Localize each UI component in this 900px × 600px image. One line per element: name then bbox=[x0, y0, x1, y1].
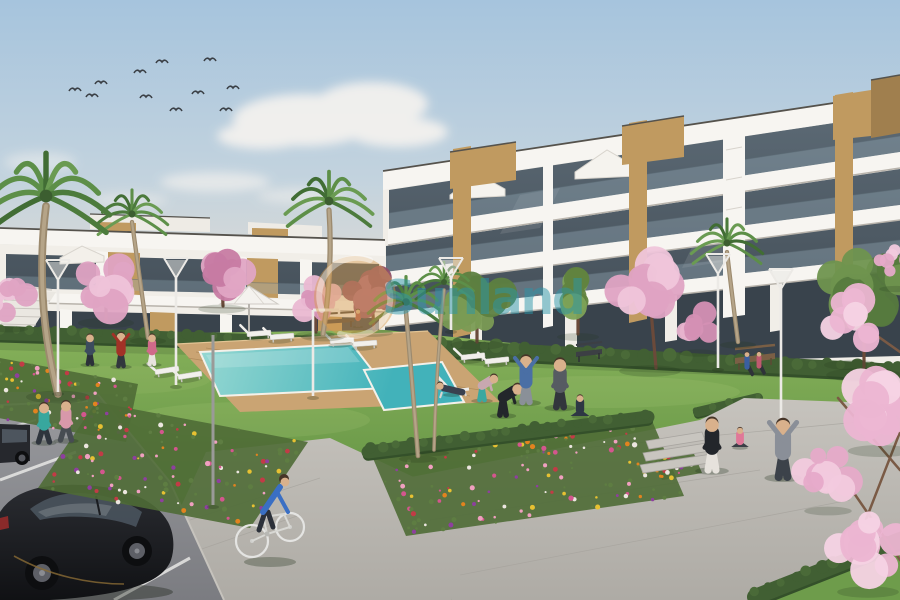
parked-car-distant bbox=[0, 424, 30, 465]
scene-canvas: Sunland bbox=[0, 0, 900, 600]
render-image: Sunland bbox=[0, 0, 900, 600]
watermark-text: Sunland bbox=[382, 271, 584, 326]
